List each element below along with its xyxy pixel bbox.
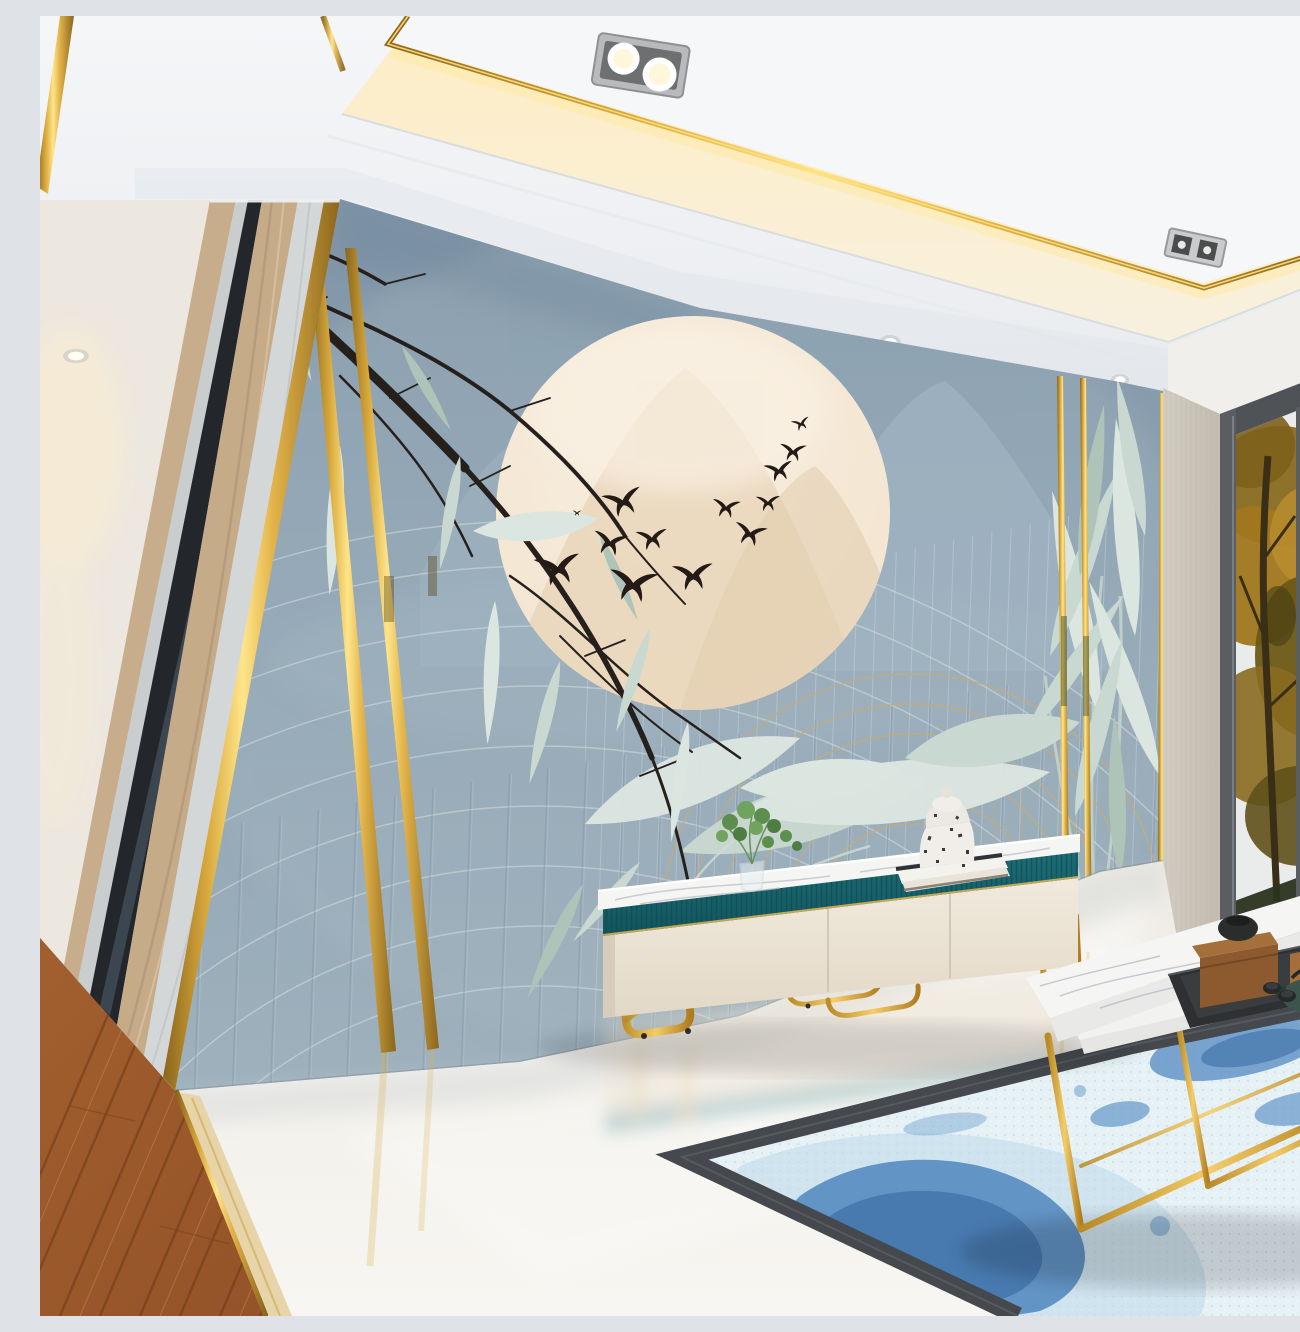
cabinet-left-cap <box>603 932 615 1018</box>
scene-canvas <box>40 16 1300 1316</box>
hallway-downlight-icon <box>63 349 89 363</box>
living-room-render: 3D interior render of a modern living ro… <box>40 16 1300 1316</box>
